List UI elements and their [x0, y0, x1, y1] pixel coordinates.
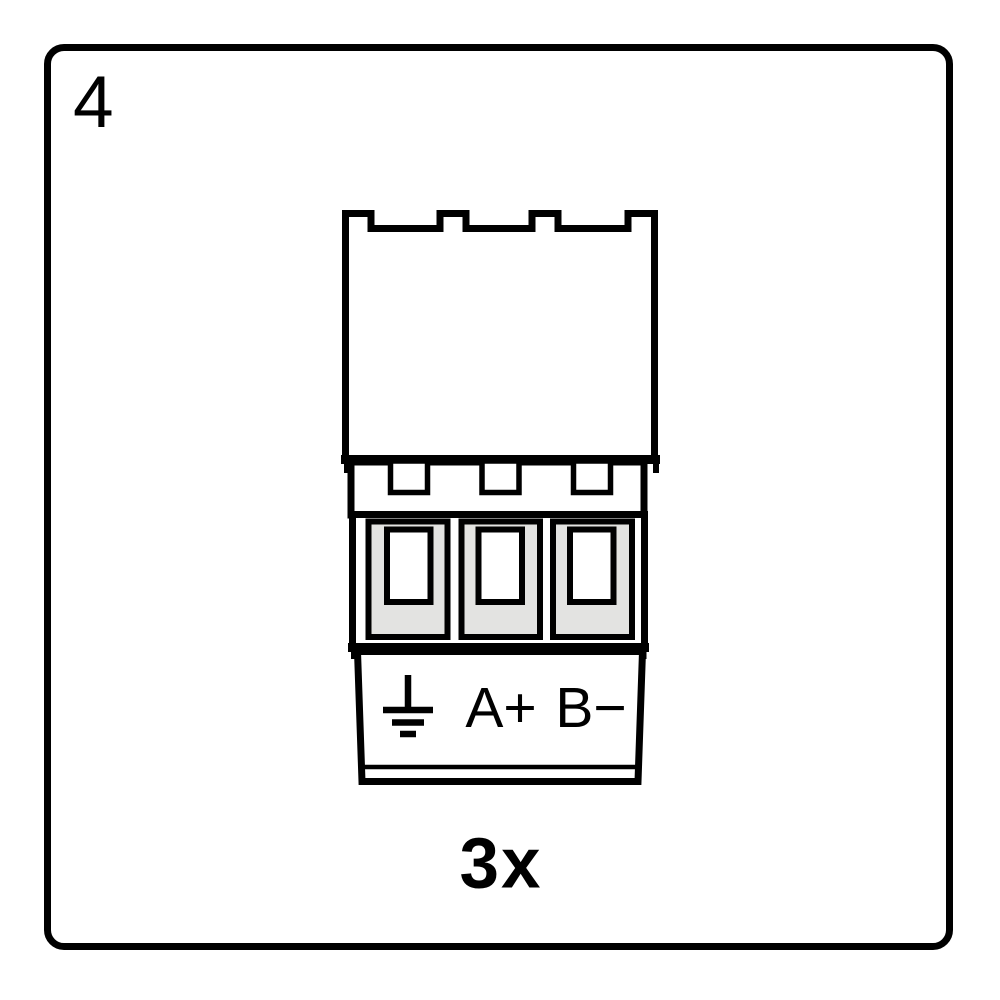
latch-notch-3 [574, 461, 611, 493]
connector-latch-band [351, 461, 644, 515]
terminal-opening-1 [387, 530, 431, 603]
terminal-label-b-minus: B− [555, 675, 626, 741]
terminal-opening-2 [479, 530, 523, 603]
upper-body-outline [346, 214, 655, 460]
quantity-label: 3x [460, 824, 543, 905]
terminal-opening-3 [570, 530, 614, 603]
latch-notch-1 [391, 461, 428, 493]
connector-terminal-section [348, 515, 649, 660]
latch-notch-2 [482, 461, 519, 493]
terminal-label-a-plus: A+ [465, 675, 536, 741]
connector-upper-body [341, 214, 660, 474]
instruction-step-panel: 4 [0, 0, 1000, 1000]
